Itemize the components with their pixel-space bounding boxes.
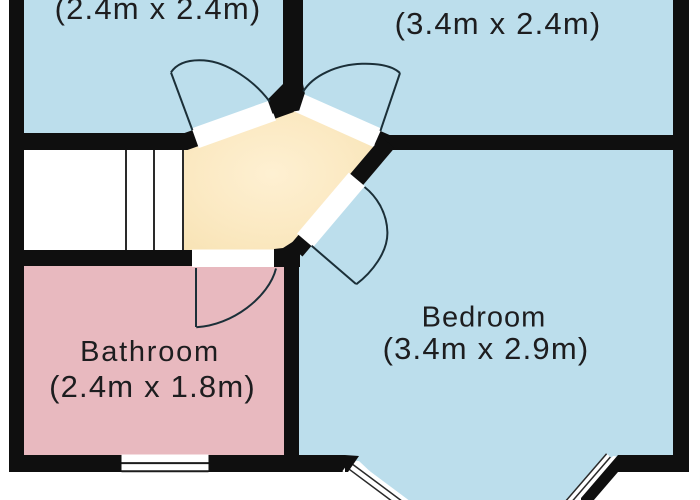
svg-text:(2.4m x 1.8m): (2.4m x 1.8m) xyxy=(49,369,256,404)
svg-text:(3.4m x 2.4m): (3.4m x 2.4m) xyxy=(395,6,602,41)
svg-text:Bedroom: Bedroom xyxy=(422,302,547,334)
svg-text:(2.4m x 2.4m): (2.4m x 2.4m) xyxy=(55,0,262,26)
svg-text:Bathroom: Bathroom xyxy=(80,336,220,368)
svg-text:(3.4m x 2.9m): (3.4m x 2.9m) xyxy=(383,331,590,366)
